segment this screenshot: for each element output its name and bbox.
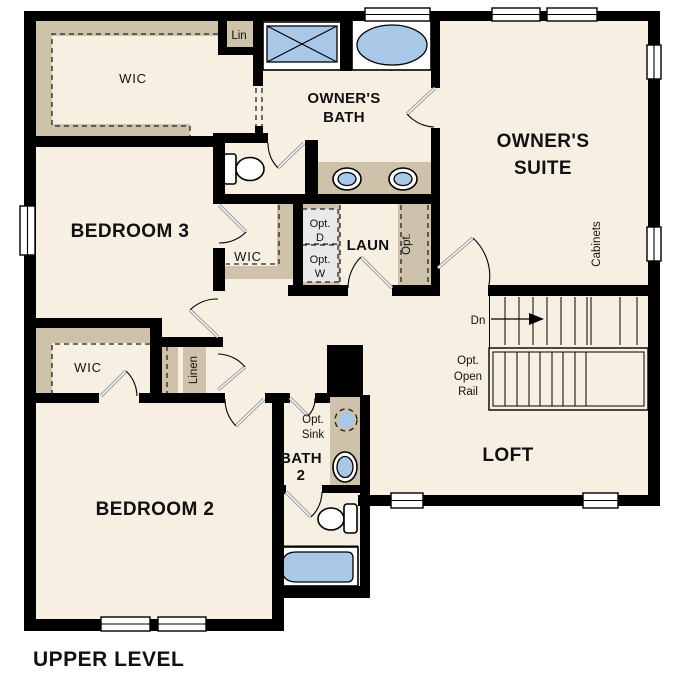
label-opt-dryer-1: Opt. bbox=[310, 218, 331, 230]
window bbox=[647, 227, 661, 261]
label-opt-sink-1: Opt. bbox=[302, 414, 324, 426]
bedroom2-wic-shelf-top bbox=[36, 328, 150, 343]
label-opt-sink-2: Sink bbox=[302, 429, 325, 441]
window bbox=[20, 206, 35, 255]
window bbox=[101, 617, 150, 631]
label-opt-open-rail-1: Opt. bbox=[457, 355, 479, 367]
label-opt-open-rail-3: Rail bbox=[458, 386, 478, 398]
label-opt-cabinets-1: Opt. bbox=[401, 233, 413, 255]
label-owners-bath-2: BATH bbox=[323, 109, 365, 126]
window bbox=[365, 8, 430, 21]
bedroom2-wic-shelf-left bbox=[36, 343, 52, 396]
soaking-tub-icon bbox=[352, 20, 431, 70]
chase bbox=[327, 345, 363, 397]
label-bedroom2: BEDROOM 2 bbox=[96, 499, 215, 520]
label-owner-wic: WIC bbox=[119, 71, 147, 86]
label-opt-cabinets-2: Cabinets bbox=[591, 221, 603, 267]
label-bedroom3: BEDROOM 3 bbox=[71, 221, 190, 242]
label-bedroom2-wic: WIC bbox=[74, 360, 102, 375]
label-bath2-2: 2 bbox=[297, 467, 306, 484]
label-opt-dryer-2: D bbox=[316, 232, 324, 244]
bedroom3-wic-shelf-bottom bbox=[225, 266, 295, 279]
linen-shelf-a bbox=[162, 345, 178, 394]
label-owners-bath-1: OWNER'S bbox=[307, 90, 380, 107]
bathtub-icon bbox=[277, 546, 358, 586]
label-owners-suite-1: OWNER'S bbox=[497, 131, 590, 152]
label-opt-washer-2: W bbox=[315, 268, 326, 280]
label-bedroom3-wic: WIC bbox=[234, 249, 262, 264]
window bbox=[158, 617, 206, 631]
label-dn: Dn bbox=[471, 315, 486, 327]
label-owners-suite-2: SUITE bbox=[514, 158, 572, 179]
label-opt-washer-1: Opt. bbox=[310, 254, 331, 266]
label-loft: LOFT bbox=[482, 445, 533, 466]
window bbox=[583, 493, 618, 508]
page-title: UPPER LEVEL bbox=[33, 648, 184, 671]
window bbox=[547, 8, 597, 21]
label-lin: Lin bbox=[231, 30, 246, 42]
label-linen: Linen bbox=[188, 356, 200, 384]
bath2-sink-icon bbox=[333, 452, 357, 482]
shower-icon bbox=[263, 22, 341, 70]
floor-plan-upper-level: WIC Lin OWNER'S BATH OWNER'S SUITE BEDRO… bbox=[0, 0, 687, 687]
label-opt-open-rail-2: Open bbox=[454, 371, 482, 383]
window bbox=[492, 8, 540, 21]
window bbox=[391, 493, 423, 508]
label-laun: LAUN bbox=[347, 237, 390, 254]
window bbox=[647, 45, 661, 79]
label-bath2-1: BATH bbox=[280, 450, 322, 467]
